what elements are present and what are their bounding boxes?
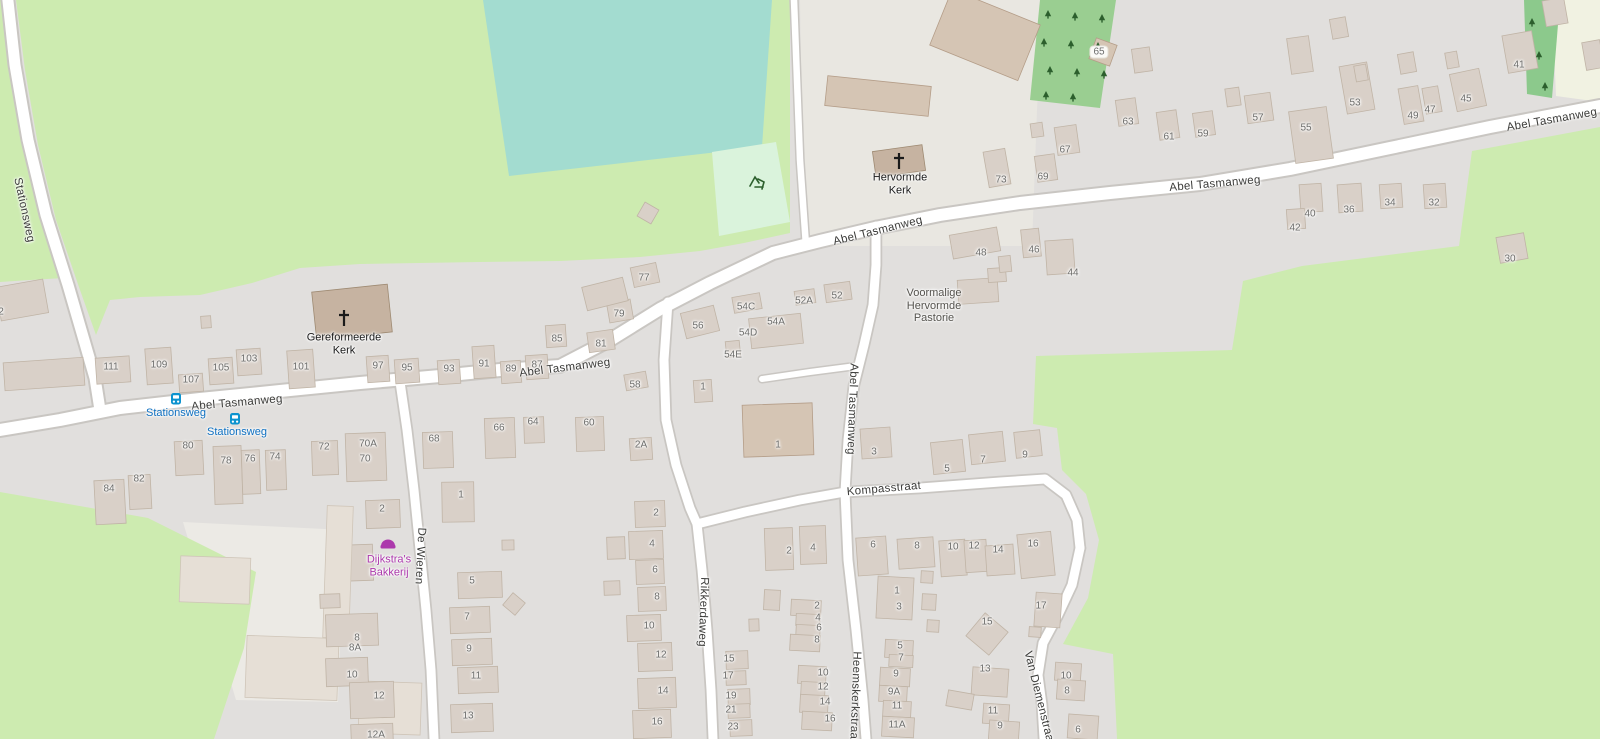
building	[728, 704, 750, 719]
building	[629, 437, 652, 460]
tree-trunk	[1101, 20, 1102, 23]
building	[1017, 531, 1055, 578]
building	[450, 606, 491, 633]
building	[633, 709, 672, 738]
building	[1054, 125, 1080, 156]
building	[638, 642, 673, 671]
building	[545, 324, 566, 347]
building	[876, 576, 914, 620]
building	[452, 638, 493, 665]
building	[985, 544, 1015, 576]
building	[1014, 430, 1043, 459]
building	[1423, 183, 1447, 208]
building	[366, 499, 401, 528]
building	[1286, 208, 1305, 229]
building	[1034, 154, 1057, 183]
bakery-icon-base	[381, 545, 396, 549]
building	[921, 571, 934, 584]
building	[128, 474, 152, 509]
building	[1397, 52, 1416, 74]
building	[624, 371, 648, 391]
building	[800, 694, 829, 713]
tree-trunk	[1103, 76, 1104, 79]
building	[213, 446, 243, 505]
building	[472, 345, 496, 378]
tree-trunk	[1531, 24, 1532, 27]
building	[1056, 679, 1085, 701]
building	[366, 355, 390, 382]
map-base-graphics	[0, 0, 1600, 739]
building	[422, 431, 453, 468]
building	[145, 347, 173, 385]
building	[1115, 98, 1138, 127]
building	[94, 479, 126, 525]
building	[1496, 233, 1528, 263]
building	[1502, 31, 1538, 74]
building	[1329, 17, 1348, 39]
building	[208, 357, 234, 385]
building	[730, 720, 753, 737]
building	[889, 654, 914, 667]
bus-stop-icon	[171, 393, 181, 405]
building	[879, 685, 908, 702]
building	[635, 500, 666, 527]
building	[174, 440, 204, 475]
building	[265, 450, 286, 491]
building	[458, 571, 503, 599]
building	[763, 590, 780, 611]
tree-trunk	[1538, 57, 1539, 60]
building	[860, 427, 892, 459]
building	[1067, 714, 1099, 739]
building	[726, 651, 749, 670]
building	[749, 619, 759, 631]
building	[1131, 47, 1152, 73]
building	[802, 711, 833, 731]
building	[1542, 0, 1568, 27]
building	[3, 357, 85, 391]
building	[320, 594, 340, 609]
building	[725, 340, 741, 357]
building	[969, 431, 1006, 464]
building	[1287, 36, 1314, 75]
building	[287, 349, 316, 389]
building	[1029, 627, 1042, 638]
map-canvas[interactable]: 2111109107105103101979593918987858179775…	[0, 0, 1600, 739]
building	[824, 281, 852, 302]
tree-trunk	[1043, 44, 1044, 47]
building	[728, 689, 751, 706]
building	[437, 359, 461, 384]
playground-area	[712, 142, 790, 236]
building	[726, 671, 746, 686]
building	[525, 354, 549, 379]
building	[1337, 183, 1363, 213]
building	[241, 450, 261, 495]
tree-trunk	[1076, 74, 1077, 77]
building	[749, 313, 804, 348]
building	[312, 284, 393, 340]
building	[1021, 228, 1042, 258]
building	[897, 537, 935, 569]
building	[236, 348, 262, 376]
building	[627, 614, 662, 641]
building	[881, 716, 914, 738]
building	[1034, 592, 1062, 628]
building	[964, 539, 988, 572]
building	[349, 681, 394, 719]
building	[927, 620, 940, 633]
building	[799, 526, 826, 565]
building	[1192, 111, 1215, 138]
building	[351, 723, 394, 739]
building	[502, 540, 514, 550]
building	[1289, 107, 1334, 164]
building	[394, 358, 420, 384]
building	[794, 289, 816, 306]
building	[1225, 87, 1241, 107]
building	[629, 530, 664, 559]
building	[201, 316, 212, 329]
building	[245, 635, 339, 700]
building	[1156, 110, 1180, 141]
building	[742, 403, 814, 457]
building	[971, 667, 1009, 697]
building	[607, 537, 626, 560]
building	[179, 556, 251, 604]
building	[1045, 239, 1075, 275]
building	[451, 703, 494, 732]
building	[575, 417, 604, 452]
building	[587, 329, 616, 352]
building	[500, 360, 521, 383]
tree-trunk	[1045, 97, 1046, 100]
building	[939, 539, 967, 577]
building	[922, 594, 937, 611]
building	[1379, 183, 1403, 208]
tree-trunk	[1049, 72, 1050, 75]
building	[484, 417, 515, 458]
building	[764, 528, 793, 571]
building	[883, 700, 912, 717]
building	[325, 613, 378, 647]
building	[790, 634, 821, 652]
building	[856, 536, 889, 576]
building	[442, 482, 475, 523]
building	[604, 581, 620, 596]
building	[693, 379, 712, 402]
building	[998, 255, 1012, 272]
building	[638, 587, 667, 612]
building	[458, 666, 499, 693]
building	[1030, 122, 1044, 138]
building	[1445, 51, 1460, 69]
building	[311, 441, 338, 476]
tree-trunk	[1070, 46, 1071, 49]
tree-trunk	[1047, 16, 1048, 19]
building	[637, 677, 676, 708]
building	[178, 373, 203, 393]
building	[345, 432, 387, 481]
building	[636, 560, 665, 585]
bus-stop-icon	[230, 413, 240, 425]
building	[930, 439, 965, 474]
building	[95, 356, 131, 384]
building	[988, 720, 1019, 739]
tree-trunk	[1544, 88, 1545, 91]
tree-trunk	[1074, 18, 1075, 21]
tree-trunk	[1072, 99, 1073, 102]
building	[1354, 64, 1369, 82]
building	[880, 667, 911, 687]
tree-trunk	[1097, 48, 1098, 51]
building	[524, 417, 545, 444]
building	[1244, 92, 1274, 123]
